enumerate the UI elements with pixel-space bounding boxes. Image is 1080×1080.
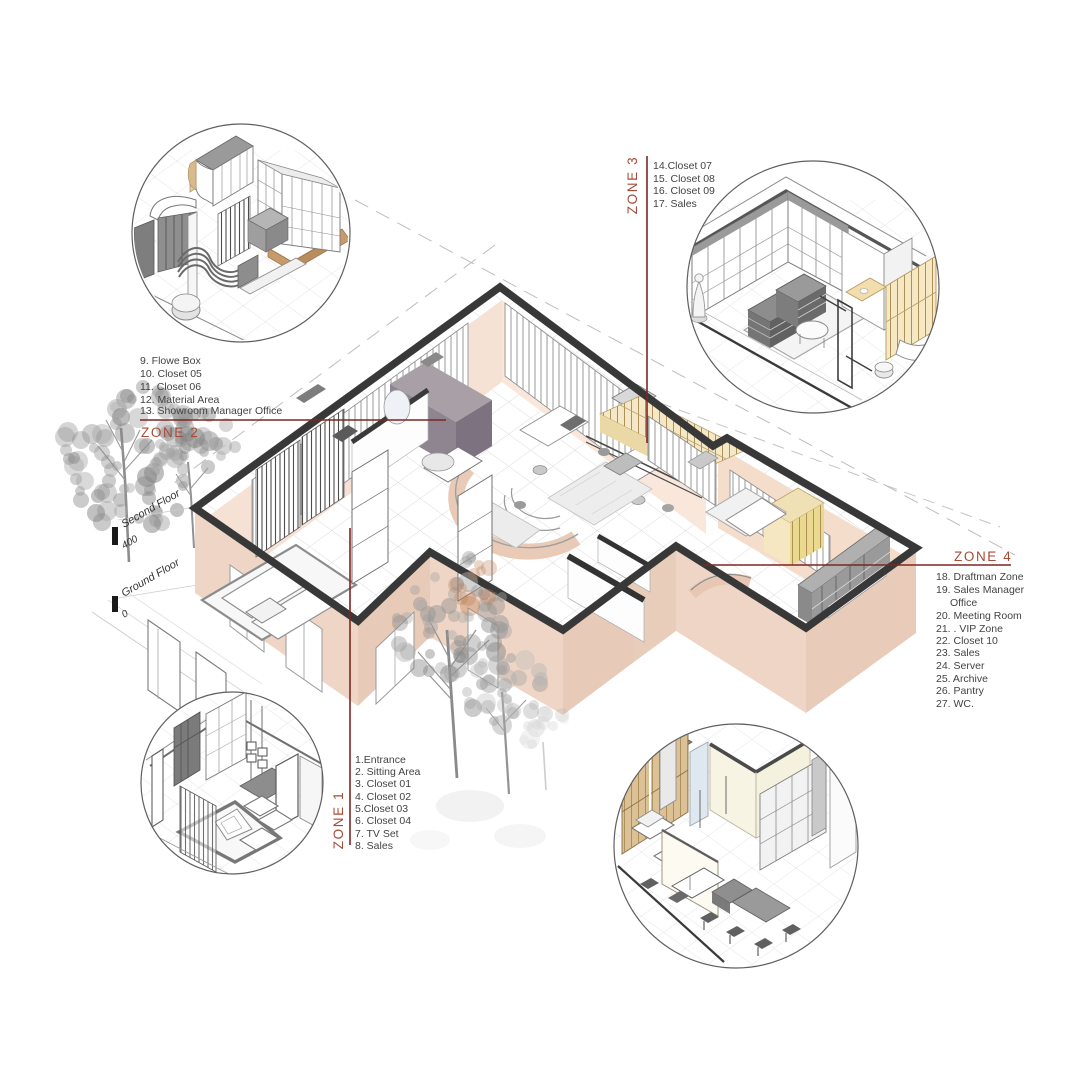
svg-text:25. Archive: 25. Archive xyxy=(936,673,988,685)
svg-text:5.Closet 03: 5.Closet 03 xyxy=(355,803,408,815)
svg-text:26. Pantry: 26. Pantry xyxy=(936,685,985,697)
svg-text:8. Sales: 8. Sales xyxy=(355,840,393,852)
svg-text:ZONE 2: ZONE 2 xyxy=(141,425,199,440)
svg-text:24. Server: 24. Server xyxy=(936,660,985,672)
svg-text:11. Closet 06: 11. Closet 06 xyxy=(140,381,201,393)
svg-text:6. Closet 04: 6. Closet 04 xyxy=(355,815,411,827)
svg-text:ZONE 3: ZONE 3 xyxy=(625,156,640,214)
svg-text:7. TV Set: 7. TV Set xyxy=(355,828,399,840)
svg-text:16. Closet 09: 16. Closet 09 xyxy=(653,185,715,197)
svg-text:15. Closet 08: 15. Closet 08 xyxy=(653,173,715,185)
svg-text:9. Flowe Box: 9. Flowe Box xyxy=(140,355,201,367)
svg-text:3. Closet 01: 3. Closet 01 xyxy=(355,778,411,790)
svg-text:1.Entrance: 1.Entrance xyxy=(355,754,406,766)
svg-text:18. Draftman Zone: 18. Draftman Zone xyxy=(936,571,1024,583)
svg-text:13. Showroom Manager Office: 13. Showroom Manager Office xyxy=(140,405,282,417)
svg-text:21. . VIP Zone: 21. . VIP Zone xyxy=(936,623,1003,635)
svg-text:4. Closet 02: 4. Closet 02 xyxy=(355,791,411,803)
svg-text:20. Meeting Room: 20. Meeting Room xyxy=(936,610,1022,622)
svg-text:14.Closet 07: 14.Closet 07 xyxy=(653,160,712,172)
svg-text:2. Sitting Area: 2. Sitting Area xyxy=(355,766,421,778)
svg-text:19. Sales Manager: 19. Sales Manager xyxy=(936,584,1025,596)
svg-text:22. Closet 10: 22. Closet 10 xyxy=(936,635,998,647)
svg-text:27. WC.: 27. WC. xyxy=(936,698,974,710)
svg-text:Office: Office xyxy=(950,597,977,609)
svg-text:17. Sales: 17. Sales xyxy=(653,198,697,210)
svg-text:10. Closet 05: 10. Closet 05 xyxy=(140,368,202,380)
svg-text:ZONE 4: ZONE 4 xyxy=(954,549,1012,564)
svg-text:ZONE 1: ZONE 1 xyxy=(331,791,346,849)
svg-text:23. Sales: 23. Sales xyxy=(936,647,980,659)
